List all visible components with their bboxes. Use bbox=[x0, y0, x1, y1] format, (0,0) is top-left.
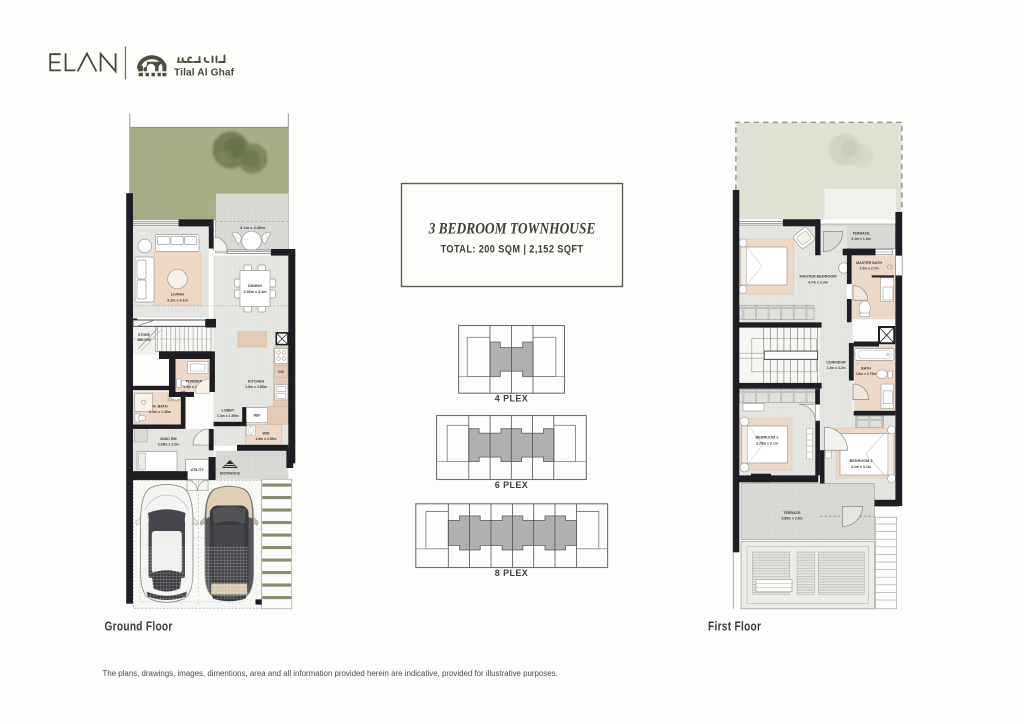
svg-text:3.1m x 1.0m: 3.1m x 1.0m bbox=[851, 237, 870, 241]
svg-text:First Floor: First Floor bbox=[708, 621, 761, 634]
svg-text:4 PLEX: 4 PLEX bbox=[495, 394, 528, 404]
svg-text:6 PLEX: 6 PLEX bbox=[495, 480, 528, 490]
svg-text:MAID RM: MAID RM bbox=[160, 437, 176, 441]
svg-text:MASTER BEDROOM: MASTER BEDROOM bbox=[800, 275, 837, 279]
svg-text:STORE: STORE bbox=[138, 333, 151, 337]
svg-text:DW: DW bbox=[278, 370, 284, 374]
svg-text:3.35m x 3.3m: 3.35m x 3.3m bbox=[244, 290, 268, 294]
svg-text:UTILITY: UTILITY bbox=[191, 468, 205, 472]
svg-text:3.25m x 3.1m: 3.25m x 3.1m bbox=[756, 442, 778, 446]
svg-text:Tilal Al Ghaf: Tilal Al Ghaf bbox=[174, 68, 235, 79]
svg-text:CORRIDOR: CORRIDOR bbox=[826, 361, 846, 365]
svg-text:3 BEDROOM TOWNHOUSE: 3 BEDROOM TOWNHOUSE bbox=[428, 221, 596, 238]
svg-text:ENTRANCE: ENTRANCE bbox=[220, 472, 241, 476]
svg-text:3.1m x 2.45m: 3.1m x 2.45m bbox=[240, 225, 265, 230]
svg-text:2.1m x 1.45m: 2.1m x 1.45m bbox=[149, 410, 171, 414]
svg-text:MASTER BATH: MASTER BATH bbox=[856, 261, 882, 265]
svg-text:8 PLEX: 8 PLEX bbox=[495, 568, 528, 578]
svg-text:TOTAL: 200 SQM | 2,152 SQFT: TOTAL: 200 SQM | 2,152 SQFT bbox=[441, 244, 584, 256]
svg-text:M. BATH: M. BATH bbox=[152, 405, 167, 409]
svg-text:DINING: DINING bbox=[248, 283, 262, 288]
svg-text:3.1m x 3.1m: 3.1m x 3.1m bbox=[851, 465, 871, 469]
svg-text:BEDROOM 3: BEDROOM 3 bbox=[850, 459, 873, 463]
svg-text:W/D: W/D bbox=[263, 432, 270, 436]
svg-text:1.2m x 4.2m: 1.2m x 4.2m bbox=[826, 366, 845, 370]
svg-text:KITCHEN: KITCHEN bbox=[248, 380, 265, 384]
svg-text:The plans, drawings, images, d: The plans, drawings, images, dimentions,… bbox=[103, 669, 558, 678]
svg-text:1.9m x 2.7m: 1.9m x 2.7m bbox=[859, 267, 878, 271]
svg-text:1.8m x 2.75m: 1.8m x 2.75m bbox=[855, 372, 876, 376]
svg-text:REF: REF bbox=[254, 414, 261, 418]
svg-text:4.7m x 3.3m: 4.7m x 3.3m bbox=[808, 281, 828, 285]
svg-text:TERRACE: TERRACE bbox=[852, 232, 870, 236]
svg-text:5.85m x 2.0m: 5.85m x 2.0m bbox=[781, 517, 802, 521]
svg-text:3.2m x 4.1m: 3.2m x 4.1m bbox=[167, 299, 189, 303]
svg-text:BATH: BATH bbox=[861, 367, 871, 371]
svg-text:Ground Floor: Ground Floor bbox=[105, 621, 173, 634]
svg-text:1.3m x 1.55m: 1.3m x 1.55m bbox=[217, 414, 239, 418]
svg-text:1.9m x 3.85m: 1.9m x 3.85m bbox=[245, 385, 267, 389]
svg-text:LIVING: LIVING bbox=[171, 292, 184, 297]
svg-text:TERRACE: TERRACE bbox=[783, 511, 801, 515]
svg-text:BEDROOM 2: BEDROOM 2 bbox=[756, 436, 779, 440]
svg-text:LOBBY: LOBBY bbox=[221, 409, 234, 413]
svg-text:BELOW: BELOW bbox=[137, 338, 151, 342]
svg-text:3.35m x 2.0m: 3.35m x 2.0m bbox=[158, 443, 180, 447]
svg-text:1.6m x 0.85m: 1.6m x 0.85m bbox=[255, 437, 276, 441]
